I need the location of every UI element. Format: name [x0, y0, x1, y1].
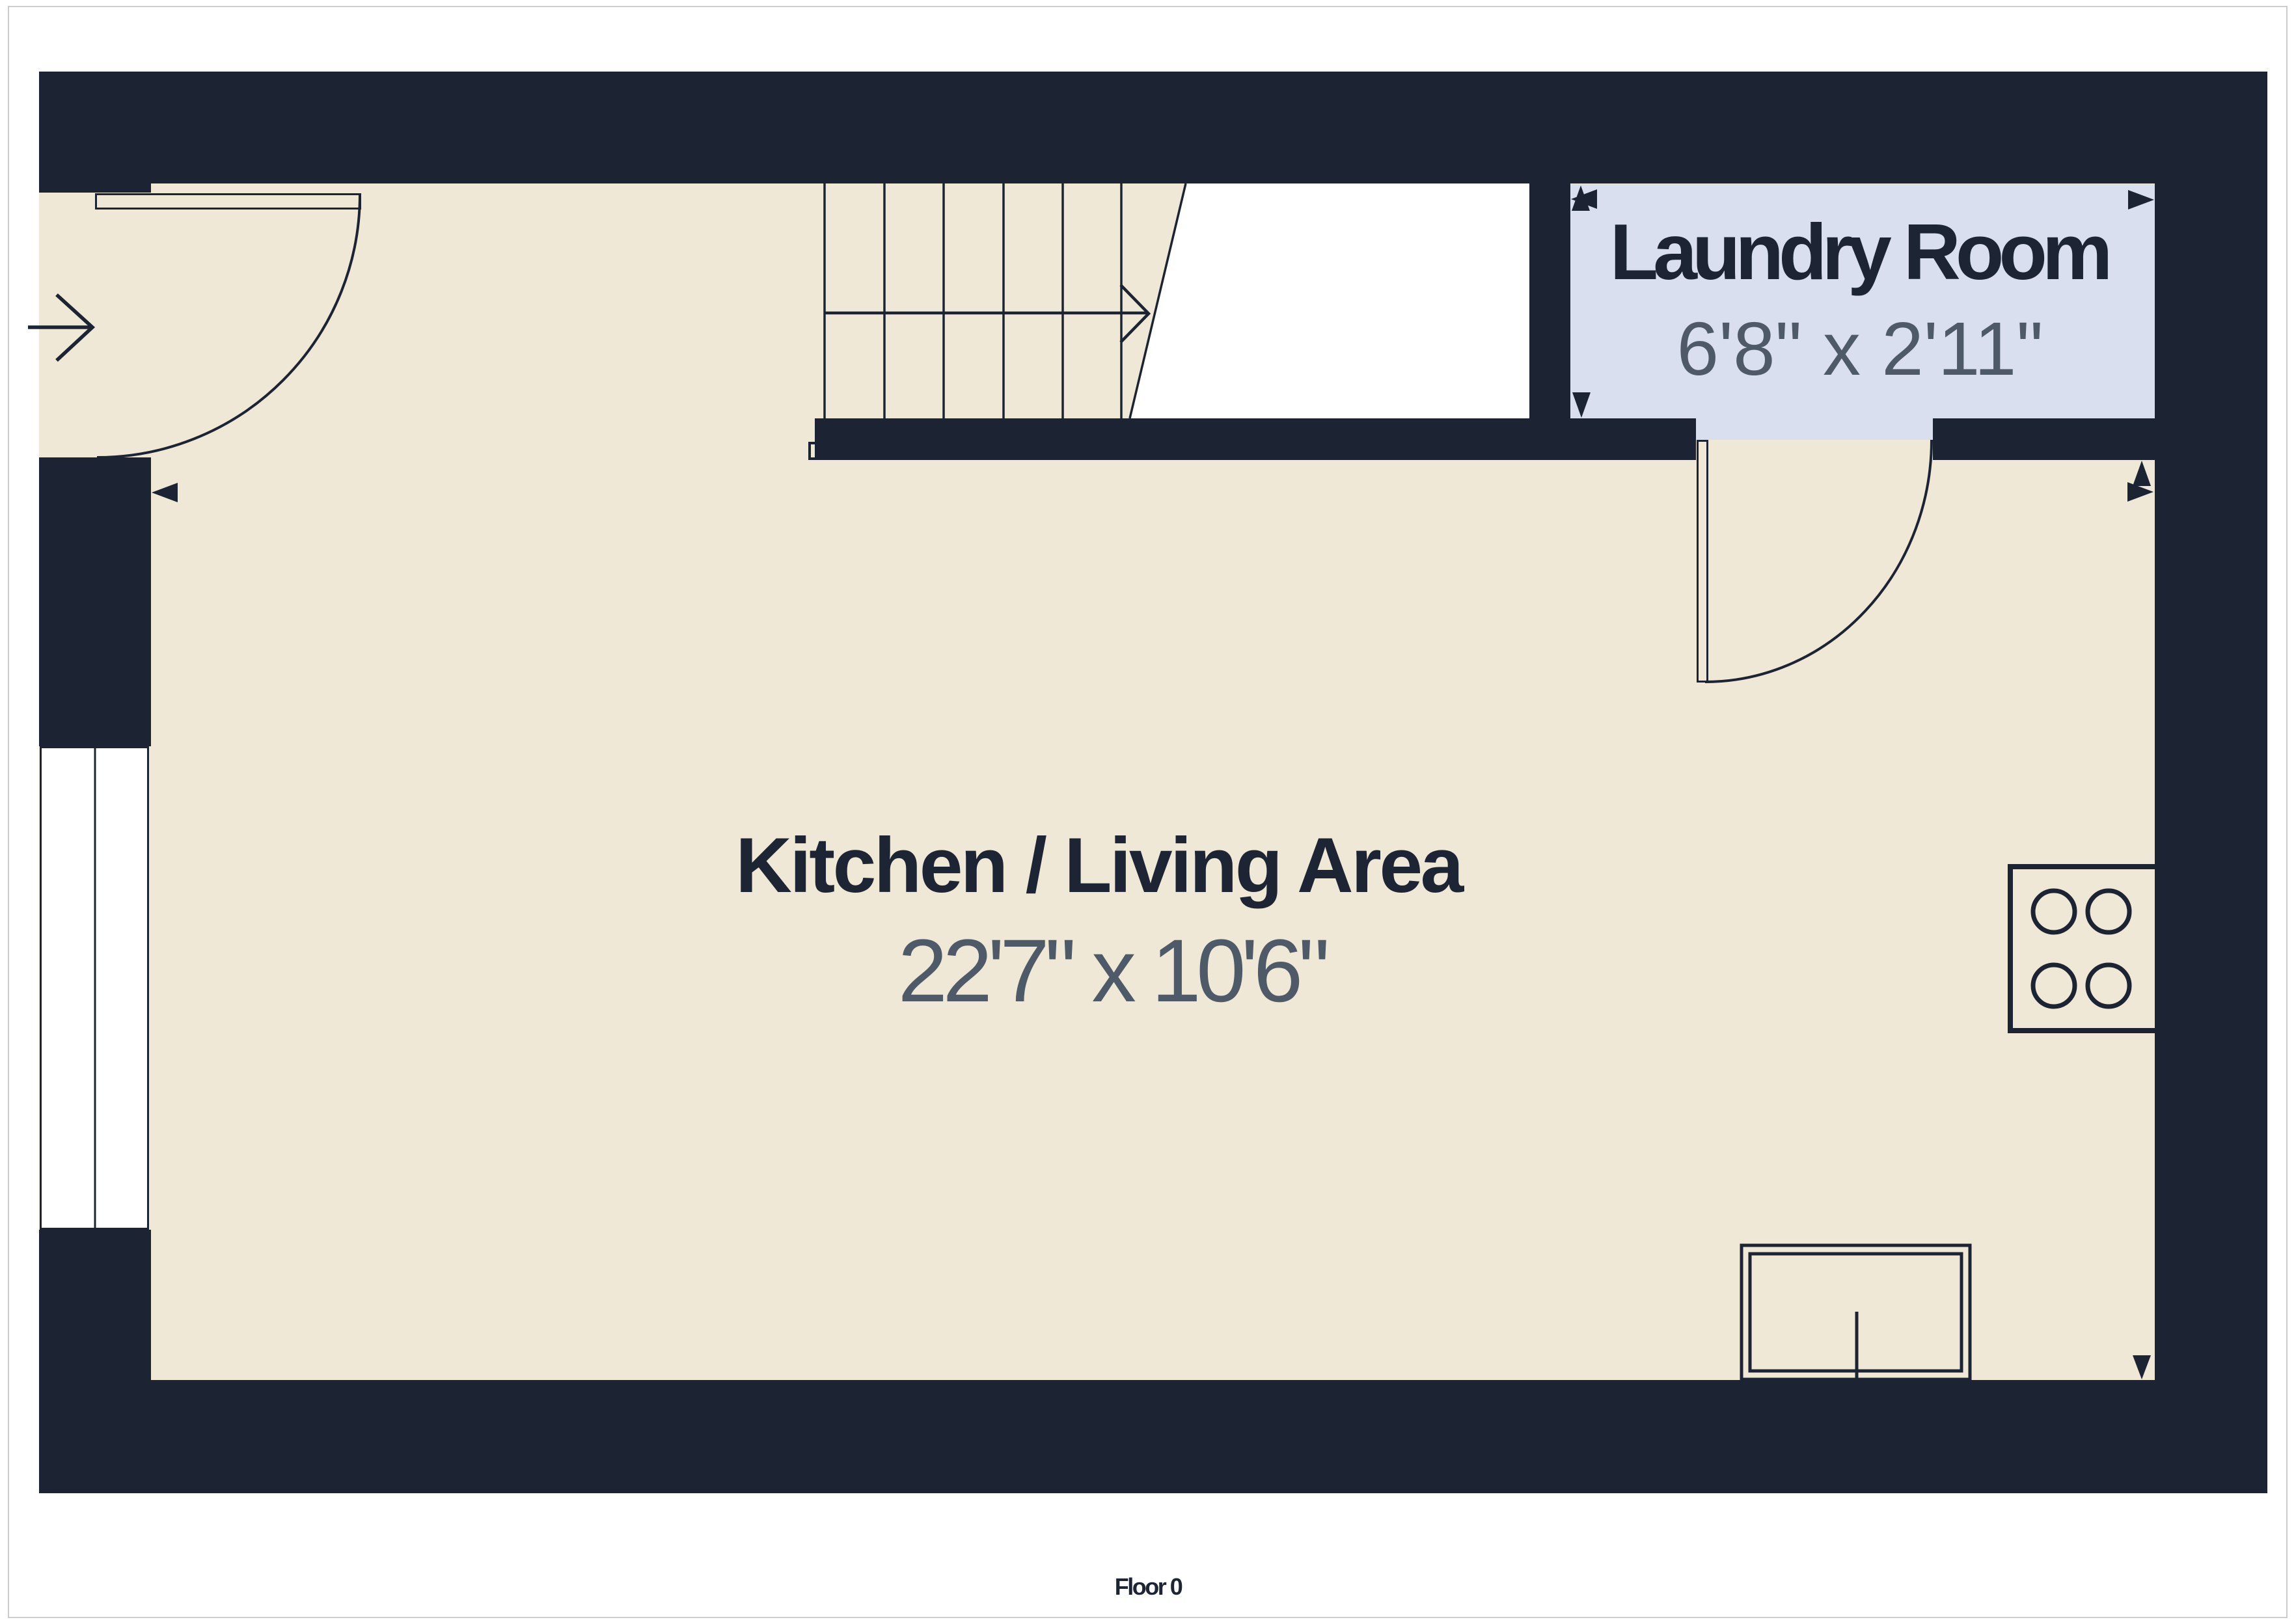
- svg-text:Laundry Room: Laundry Room: [1610, 208, 2108, 296]
- svg-text:22'7" x 10'6": 22'7" x 10'6": [898, 921, 1326, 1021]
- svg-text:6'8" x 2'11": 6'8" x 2'11": [1676, 306, 2043, 391]
- svg-text:Floor 0: Floor 0: [1115, 1573, 1182, 1600]
- svg-text:Kitchen / Living Area: Kitchen / Living Area: [735, 822, 1464, 909]
